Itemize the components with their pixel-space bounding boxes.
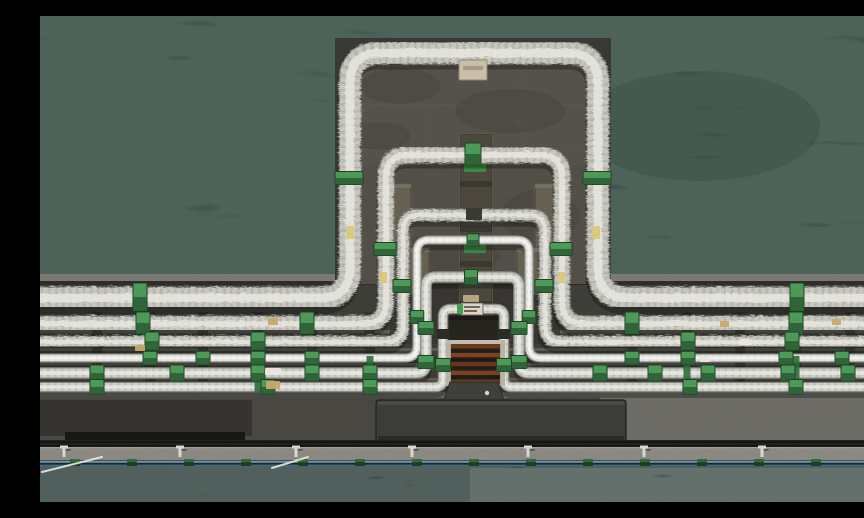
aerial-pipeline-photo — [40, 16, 864, 502]
pipeline-scene-canvas — [40, 16, 864, 502]
sea-water-bottom — [40, 466, 864, 502]
walkway — [40, 446, 864, 461]
crane-rails — [40, 440, 864, 448]
